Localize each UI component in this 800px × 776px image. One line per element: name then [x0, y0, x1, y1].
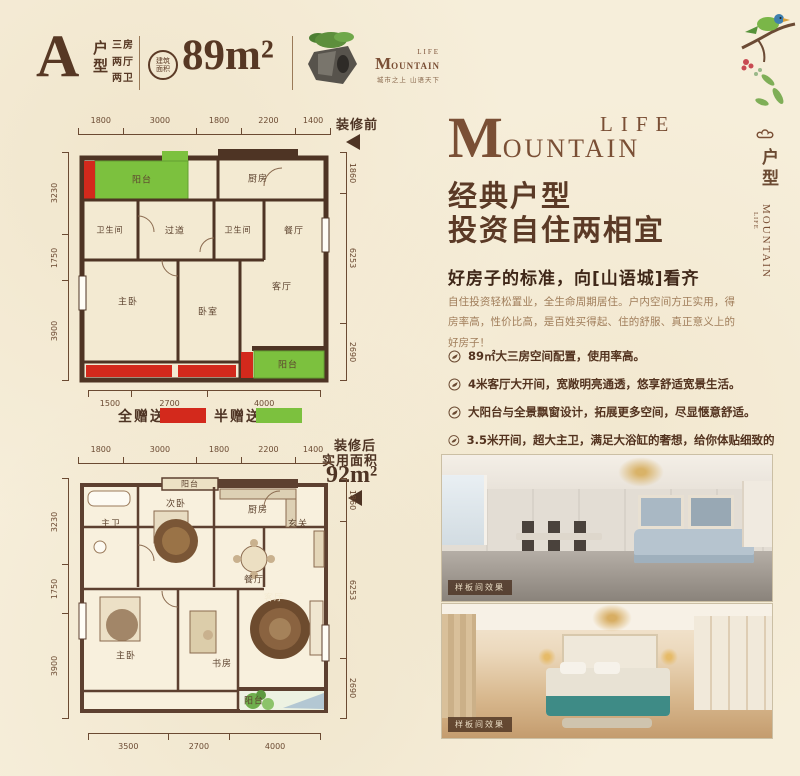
dim-label: 6253: [348, 248, 357, 268]
room-label-study: 书房: [212, 657, 232, 670]
dim-label: 1400: [303, 445, 323, 454]
legend-full-gift-label: 全赠送: [118, 406, 166, 426]
photo-detail-dining-set: [522, 517, 622, 551]
photo-detail-art1: [638, 495, 684, 529]
room-label-balcony: 阳台: [132, 173, 152, 186]
construction-area-seal: 建筑面积: [148, 50, 178, 80]
photo-detail-cabinet: [742, 481, 773, 547]
brand-lockup-large: LIFE MOUNTAIN: [448, 112, 748, 176]
dim-label: 1860: [348, 490, 357, 510]
leaf-seal-icon: [448, 434, 460, 447]
bullet-item: 大阳台与全景飘窗设计，拓展更多空间，尽显惬意舒适。: [448, 404, 774, 420]
plan-before-dims-left: 3230 1750 3900: [62, 152, 69, 381]
arrow-left-icon: [346, 134, 360, 150]
photo-detail-wardrobe: [694, 616, 772, 710]
floorplan-after: 阳台 厨房 主卫 次卧 玄关 餐厅 主卧 书房 客厅 阳台: [78, 475, 330, 725]
dim-label: 2200: [258, 445, 278, 454]
floorplan-before: 阳台 厨房 卫生间 过道 卫生间 餐厅 主卧 卧室 客厅 阳台: [78, 146, 330, 384]
header-divider-2: [292, 36, 293, 90]
photo-caption-badge: 样板间效果: [448, 717, 512, 732]
photo-detail-throw: [546, 696, 670, 716]
room-label-dining: 餐厅: [284, 224, 304, 237]
floorplan-before-drawing: [78, 146, 330, 384]
photo-detail-pillow: [560, 662, 586, 674]
leaf-seal-icon: [448, 406, 461, 419]
photo-caption-badge: 样板间效果: [448, 580, 512, 595]
dim-label: 2700: [189, 742, 209, 751]
dim-label: 3900: [50, 656, 59, 676]
subheadline: 好房子的标准，向[山语城]看齐: [448, 264, 700, 289]
dim-label: 3500: [118, 742, 138, 751]
room-label-second-bedroom: 次卧: [166, 497, 186, 510]
plan-before-tag: 装修前: [336, 114, 378, 133]
floorplan-after-drawing: [78, 475, 330, 725]
seal-text: 建筑面积: [155, 57, 171, 73]
legend-full-gift-swatch: [160, 408, 206, 423]
legend-half-gift-swatch: [256, 408, 302, 423]
photo-detail-pillow: [594, 662, 620, 674]
dim-label: 2690: [348, 342, 357, 362]
leaf-seal-icon: [448, 350, 461, 363]
dim-label: 1800: [209, 445, 229, 454]
brand-initial-small: M: [375, 54, 391, 73]
dim-label: 1800: [91, 445, 111, 454]
unit-type-label: 户型: [90, 40, 111, 86]
room-label-hall: 过道: [165, 224, 185, 237]
feature-bullets: 89㎡大三房空间配置，使用率高。 4米客厅大开间，宽敞明亮通透，悠享舒适宽景生活…: [448, 348, 774, 460]
brand-rest-large: OUNTAIN: [503, 134, 640, 163]
bullet-text: 4米客厅大开间，宽敞明亮通透，悠享舒适宽景生活。: [468, 376, 741, 392]
unit-type-letter: A: [36, 26, 79, 86]
brand-tagline-small: 城市之上 山语天下: [366, 74, 440, 84]
unit-rooms-summary: 三房 两厅 两卫: [112, 38, 134, 88]
photo-detail-lamp: [660, 648, 678, 666]
bullet-text: 大阳台与全景飘窗设计，拓展更多空间，尽显惬意舒适。: [468, 404, 756, 420]
bullet-item: 4米客厅大开间，宽敞明亮通透，悠享舒适宽景生活。: [448, 376, 774, 392]
room-label-bedroom: 卧室: [198, 305, 218, 318]
leaf-seal-icon: [448, 378, 461, 391]
room-label-dining: 餐厅: [244, 573, 264, 586]
photo-detail-window: [442, 475, 487, 545]
dim-label: 4000: [265, 742, 285, 751]
room-label-bath2: 卫生间: [225, 225, 252, 236]
room-label-living: 客厅: [264, 591, 284, 604]
room-label-bath1: 卫生间: [97, 225, 124, 236]
dim-label: 3230: [50, 511, 59, 531]
dim-label: 1750: [50, 247, 59, 267]
photo-living-room: 样板间效果: [441, 454, 773, 602]
side-banner-label: 户型: [756, 148, 781, 200]
photo-detail-art2: [688, 495, 734, 529]
room-label-living: 客厅: [272, 280, 292, 293]
dim-label: 3900: [50, 321, 59, 341]
room-label-kitchen: 厨房: [248, 172, 268, 185]
legend-half-gift-label: 半赠送: [214, 406, 262, 426]
plan-after-dims-bottom: 3500 2700 4000: [88, 733, 321, 740]
bird-branch-illustration: [738, 10, 796, 122]
photo-detail-table: [516, 533, 602, 540]
dim-label: 3000: [150, 116, 170, 125]
headline-invest-live: 投资自住两相宜: [448, 214, 665, 247]
photo-detail-lamp: [538, 648, 556, 666]
brand-initial-large: M: [448, 105, 503, 170]
photo-detail-chandelier: [618, 457, 664, 487]
cloud-ruyi-icon: [754, 128, 776, 142]
room-label-master: 主卧: [118, 295, 138, 308]
room-label-master-bath: 主卫: [101, 517, 121, 530]
plan-before-dims-top: 1800 3000 1800 2200 1400: [78, 128, 331, 135]
photo-detail-chandelier: [592, 604, 632, 632]
plan-before-dims-bottom: 1500 2700 4000: [88, 390, 321, 397]
photo-bedroom: 样板间效果: [441, 603, 773, 739]
photo-detail-curtain: [442, 614, 476, 718]
bullet-text: 3.5米开间，超大主卫，满足大浴缸的奢想，给你体贴细致的呵护。: [467, 432, 774, 448]
side-banner-brand-sub: LIFE: [752, 212, 759, 242]
body-paragraph: 自住投资轻松置业，全生命周期居住。户内空间方正实用，得房率高，性价比高，是百姓买…: [448, 292, 735, 353]
dim-label: 1800: [91, 116, 111, 125]
room-label-kitchen: 厨房: [248, 503, 268, 516]
plan-after-dims-top: 1800 3000 1800 2200 1400: [78, 457, 331, 464]
brand-rest-small: OUNTAIN: [391, 61, 440, 71]
dim-label: 2690: [348, 678, 357, 698]
dim-label: 1800: [209, 116, 229, 125]
poster-floorplan-page: { "header": { "type_letter": "A", "type_…: [0, 0, 800, 776]
dim-label: 1860: [348, 163, 357, 183]
photo-detail-sofa: [634, 529, 754, 563]
construction-area-value: 89m²: [182, 34, 274, 77]
headline-classic-unit: 经典户型: [448, 180, 572, 213]
photo-detail-bench: [562, 718, 652, 728]
plan-after-dims-right: 1860 6253 2690: [340, 478, 347, 719]
room-label-balcony-top: 阳台: [181, 479, 199, 490]
header-divider: [139, 36, 140, 90]
side-banner-brand: MOUNTAIN: [760, 204, 772, 262]
dim-label: 2200: [258, 116, 278, 125]
rock-bonsai-logo-icon: [302, 28, 364, 90]
dim-label: 3230: [50, 183, 59, 203]
photo-detail-ceiling: [442, 455, 772, 489]
dim-label: 1400: [303, 116, 323, 125]
brand-lockup-small: LIFE MOUNTAIN 城市之上 山语天下: [366, 48, 440, 84]
plan-after-dims-left: 3230 1750 3900: [62, 478, 69, 719]
room-label-balcony2: 阳台: [278, 358, 298, 371]
room-label-balcony-bottom: 阳台: [244, 694, 264, 707]
bullet-text: 89㎡大三房空间配置，使用率高。: [468, 348, 645, 364]
brand-life-large: LIFE: [600, 112, 676, 137]
bullet-item: 3.5米开间，超大主卫，满足大浴缸的奢想，给你体贴细致的呵护。: [448, 432, 774, 448]
dim-label: 3000: [150, 445, 170, 454]
dim-label: 1750: [50, 579, 59, 599]
room-label-master-bedroom: 主卧: [116, 649, 136, 662]
room-label-foyer: 玄关: [288, 517, 308, 530]
bullet-item: 89㎡大三房空间配置，使用率高。: [448, 348, 774, 364]
rooms-line-halls: 两厅: [112, 55, 134, 72]
rooms-line-baths: 两卫: [112, 71, 134, 88]
rooms-line-bedrooms: 三房: [112, 38, 134, 55]
dim-label: 6253: [348, 580, 357, 600]
plan-before-dims-right: 1860 6253 2690: [340, 152, 347, 381]
plan-after-area: 92m²: [326, 462, 377, 489]
